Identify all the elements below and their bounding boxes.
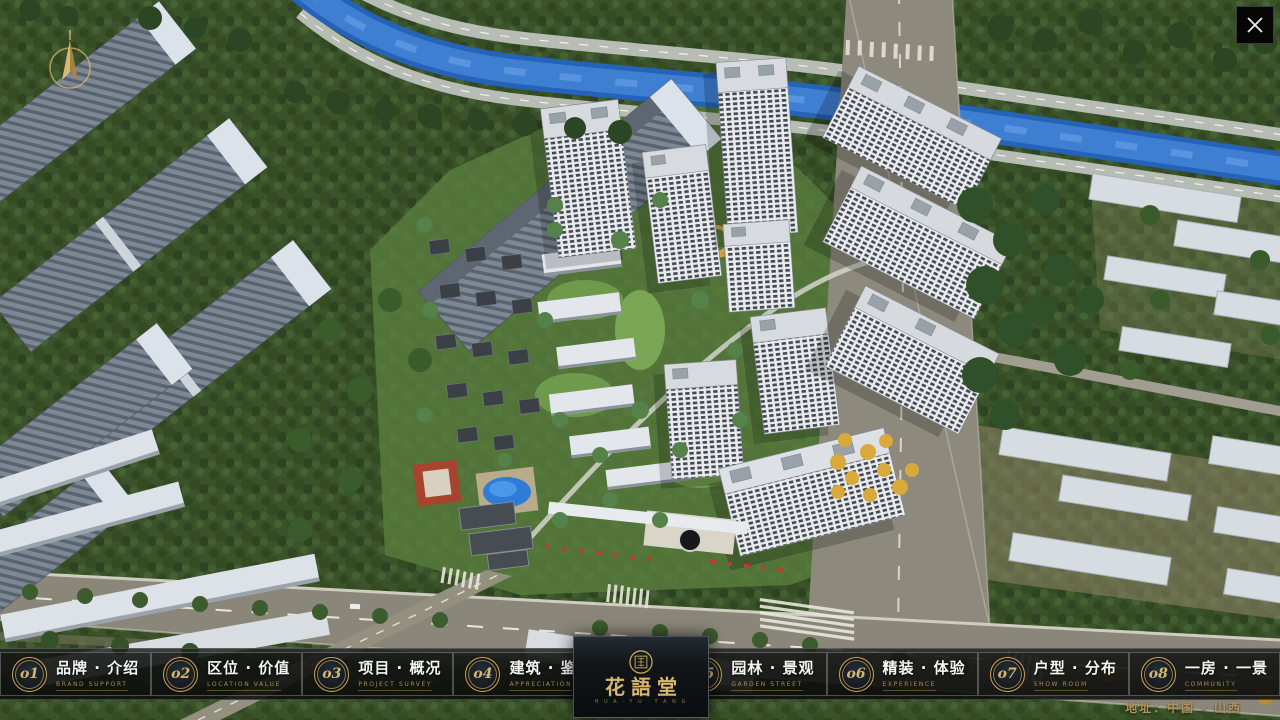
masterplan-3d-view xyxy=(0,0,1280,720)
brand-caption: H U A · Y U · T A N G xyxy=(595,699,688,705)
brand-logo-panel[interactable]: 花語堂 H U A · Y U · T A N G xyxy=(573,636,709,718)
menu-item-interior[interactable]: o6 精装 · 体验 EXPERIENCE xyxy=(827,652,978,696)
menu-label-en: SHOW ROOM xyxy=(1034,681,1088,691)
menu-label-en: APPRECIATION xyxy=(509,681,572,691)
menu-label-zh: 户型 · 分布 xyxy=(1034,657,1117,678)
menu-label-en: COMMUNITY xyxy=(1185,681,1237,691)
item-number-badge: o8 xyxy=(1141,657,1176,692)
menu-label-zh: 一房 · 一景 xyxy=(1185,657,1268,678)
menu-item-floorplan[interactable]: o7 户型 · 分布 SHOW ROOM xyxy=(978,652,1129,696)
item-number-badge: o1 xyxy=(12,657,47,692)
menu-label-zh: 品牌 · 介绍 xyxy=(56,657,139,678)
menu-label-en: PROJECT SURVEY xyxy=(358,681,432,691)
item-number-badge: o6 xyxy=(839,657,874,692)
menu-label-en: LOCATION VALUE xyxy=(207,681,281,691)
menu-label-en: GARDEN STREET xyxy=(731,681,802,691)
menu-item-location[interactable]: o2 区位 · 价值 LOCATION VALUE xyxy=(151,652,302,696)
menu-item-project[interactable]: o3 项目 · 概况 PROJECT SURVEY xyxy=(302,652,453,696)
menu-label-zh: 区位 · 价值 xyxy=(207,657,290,678)
close-button[interactable] xyxy=(1236,6,1274,44)
item-number-badge: o4 xyxy=(465,657,500,692)
menu-group-right: o5 园林 · 景观 GARDEN STREET o6 精装 · 体验 EXPE… xyxy=(675,652,1280,696)
close-icon xyxy=(1246,16,1264,34)
menu-label-zh: 精装 · 体验 xyxy=(883,657,966,678)
item-number-badge: o7 xyxy=(990,657,1025,692)
menu-label-en: EXPERIENCE xyxy=(883,681,937,691)
menu-item-brand[interactable]: o1 品牌 · 介绍 BRAND SUPPORT xyxy=(0,652,151,696)
project-address: 地址：中国 · 山西 xyxy=(1125,699,1242,716)
brand-seal-icon xyxy=(628,649,654,675)
menu-group-left: o1 品牌 · 介绍 BRAND SUPPORT o2 区位 · 价值 LOCA… xyxy=(0,652,605,696)
menu-label-en: BRAND SUPPORT xyxy=(56,681,128,691)
item-number-badge: o2 xyxy=(163,657,198,692)
brand-title: 花語堂 xyxy=(599,677,683,697)
menu-item-view[interactable]: o8 一房 · 一景 COMMUNITY xyxy=(1129,652,1280,696)
presentation-window: o1 品牌 · 介绍 BRAND SUPPORT o2 区位 · 价值 LOCA… xyxy=(0,0,1280,720)
compass-icon xyxy=(38,28,102,110)
menu-label-zh: 项目 · 概况 xyxy=(358,657,441,678)
menu-label-zh: 园林 · 景观 xyxy=(731,657,814,678)
item-number-badge: o3 xyxy=(314,657,349,692)
